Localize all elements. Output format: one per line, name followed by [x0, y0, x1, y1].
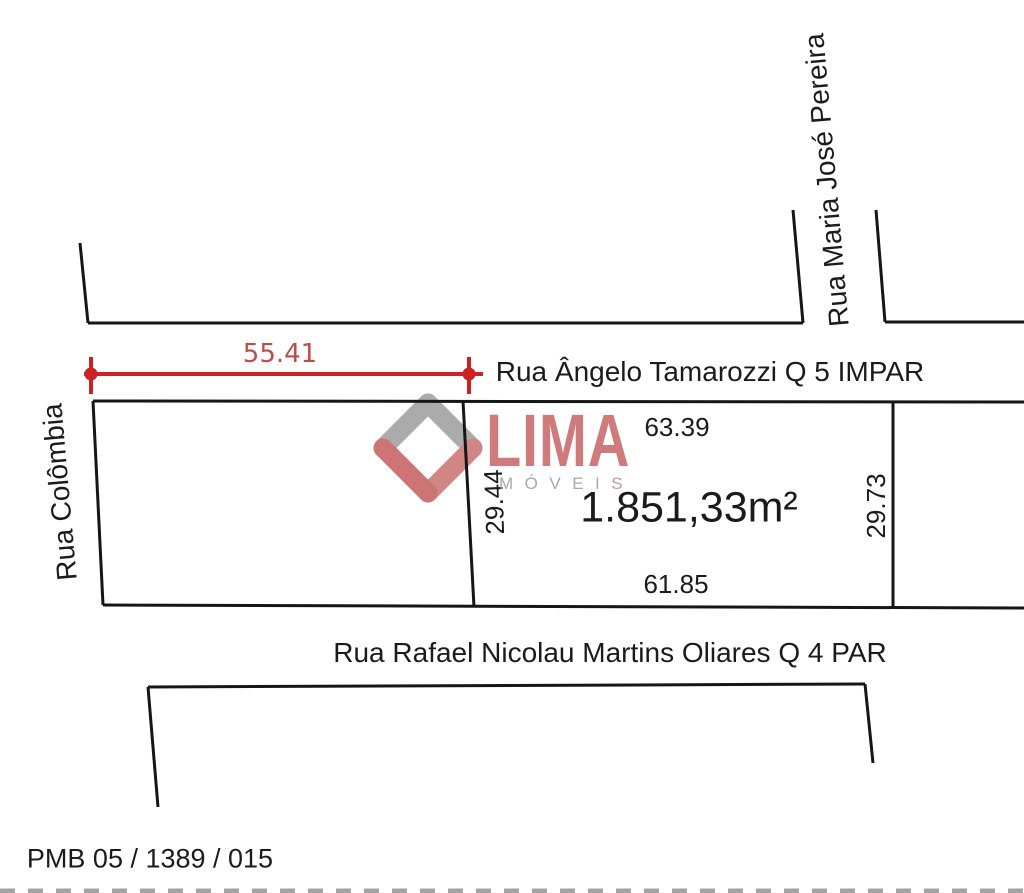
top-left-street-corner-line — [80, 243, 88, 323]
maria-jose-pereira-left-curb — [793, 210, 803, 323]
lima-subtitle-watermark: MÓVEIS — [499, 475, 634, 492]
bottom-block-top-boundary — [148, 684, 865, 687]
registry-code: PMB 05 / 1389 / 015 — [27, 846, 273, 873]
dimension-bottom-side: 61.85 — [643, 571, 708, 597]
diamond-edge-bottom-left — [383, 448, 428, 493]
dimension-right-endpoint — [463, 368, 476, 381]
lot-block-left-boundary — [93, 401, 103, 605]
lima-subtitle-suffix: S — [611, 474, 634, 493]
street-name-top: Rua Ângelo Tamarozzi Q 5 IMPAR — [496, 358, 924, 386]
bottom-block-left-boundary — [148, 687, 158, 807]
lima-logo-diamond-icon — [383, 403, 473, 493]
dimension-front-width: 55.41 — [243, 341, 317, 367]
dimension-right-side: 29.73 — [863, 473, 889, 538]
bottom-block-right-boundary — [865, 684, 873, 763]
lima-subtitle-prefix: MÓVEI — [499, 474, 611, 493]
dimension-left-endpoint — [85, 368, 98, 381]
land-plot-survey-sketch: Rua Ângelo Tamarozzi Q 5 IMPAR Rua Maria… — [0, 0, 1024, 893]
dimension-top-side: 63.39 — [644, 414, 709, 440]
lot-block-bottom-boundary — [103, 605, 1024, 608]
street-name-bottom: Rua Rafael Nicolau Martins Oliares Q 4 P… — [333, 639, 886, 667]
diamond-edge-top-left — [383, 403, 428, 448]
lima-brand-watermark: LIMA — [486, 404, 630, 478]
maria-jose-pereira-right-curb — [876, 210, 885, 322]
